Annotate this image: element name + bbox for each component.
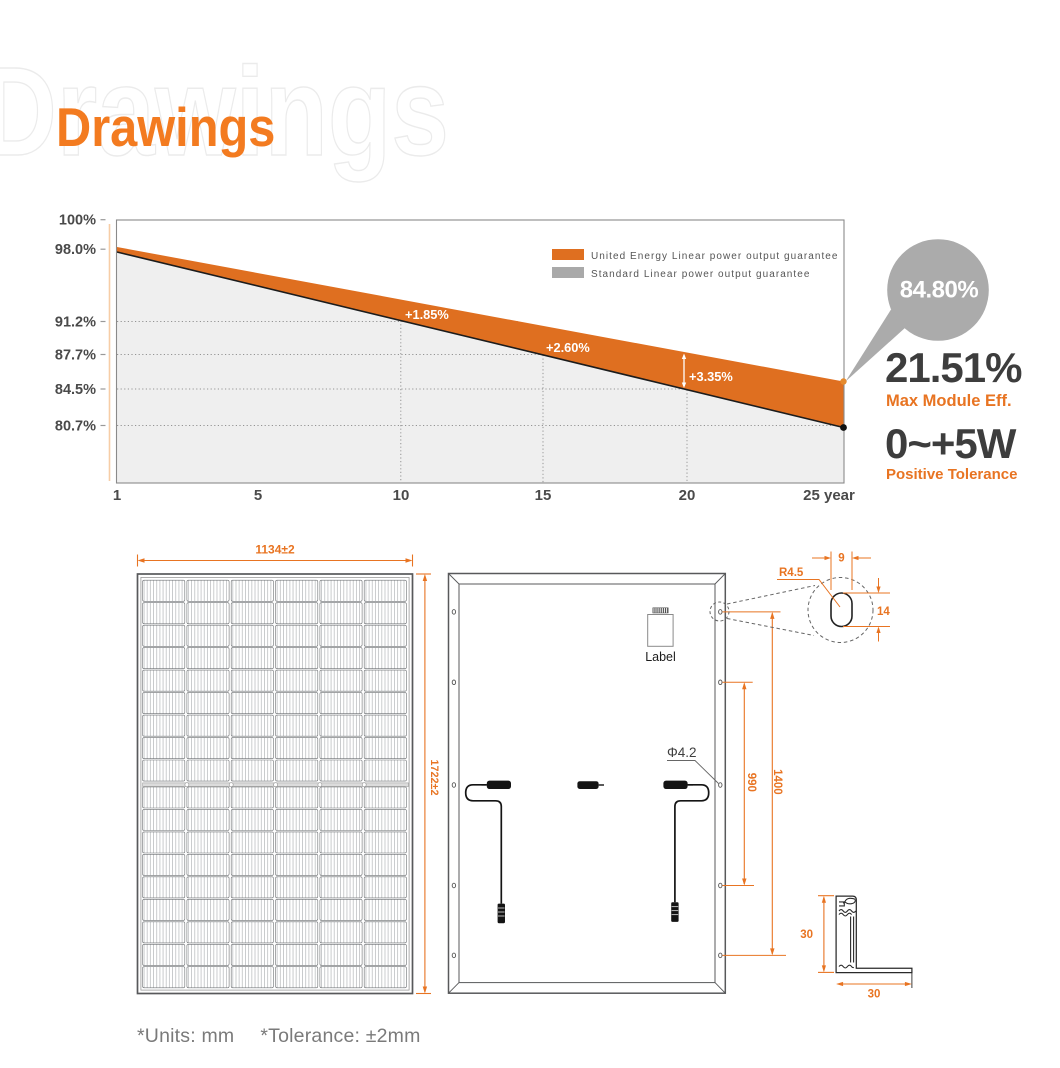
svg-text:1400: 1400: [771, 769, 783, 795]
svg-text:Φ4.2: Φ4.2: [667, 745, 697, 760]
svg-text:R4.5: R4.5: [779, 567, 804, 579]
svg-text:+1.85%: +1.85%: [405, 307, 449, 322]
svg-text:1134±2: 1134±2: [255, 543, 295, 557]
svg-text:0~+5W: 0~+5W: [885, 420, 1017, 467]
svg-text:25 year: 25 year: [803, 487, 855, 504]
svg-text:14: 14: [877, 606, 890, 618]
svg-text:15: 15: [535, 487, 552, 504]
svg-text:10: 10: [393, 487, 410, 504]
svg-text:Max Module Eff.: Max Module Eff.: [886, 392, 1012, 410]
svg-text:Label: Label: [645, 650, 676, 664]
svg-text:87.7%: 87.7%: [55, 348, 96, 364]
svg-text:91.2%: 91.2%: [55, 315, 96, 331]
svg-text:+3.35%: +3.35%: [689, 369, 733, 384]
svg-text:1: 1: [113, 487, 121, 504]
svg-text:Standard Linear power output g: Standard Linear power output guarantee: [591, 269, 810, 280]
svg-text:100%: 100%: [59, 213, 96, 229]
svg-text:990: 990: [745, 773, 757, 792]
svg-text:84.5%: 84.5%: [55, 382, 96, 398]
svg-text:30: 30: [868, 989, 881, 1001]
svg-text:Positive Tolerance: Positive Tolerance: [886, 466, 1017, 483]
svg-text:98.0%: 98.0%: [55, 242, 96, 258]
svg-text:30: 30: [800, 929, 813, 941]
svg-text:9: 9: [838, 553, 844, 565]
svg-text:84.80%: 84.80%: [900, 277, 979, 304]
svg-text:20: 20: [679, 487, 696, 504]
svg-text:+2.60%: +2.60%: [546, 340, 590, 355]
svg-text:1722±2: 1722±2: [428, 760, 440, 796]
svg-text:21.51%: 21.51%: [885, 344, 1022, 391]
svg-text:80.7%: 80.7%: [55, 419, 96, 435]
svg-text:5: 5: [254, 487, 262, 504]
svg-text:United Energy Linear power ou: United Energy Linear power output guaran…: [591, 251, 839, 262]
